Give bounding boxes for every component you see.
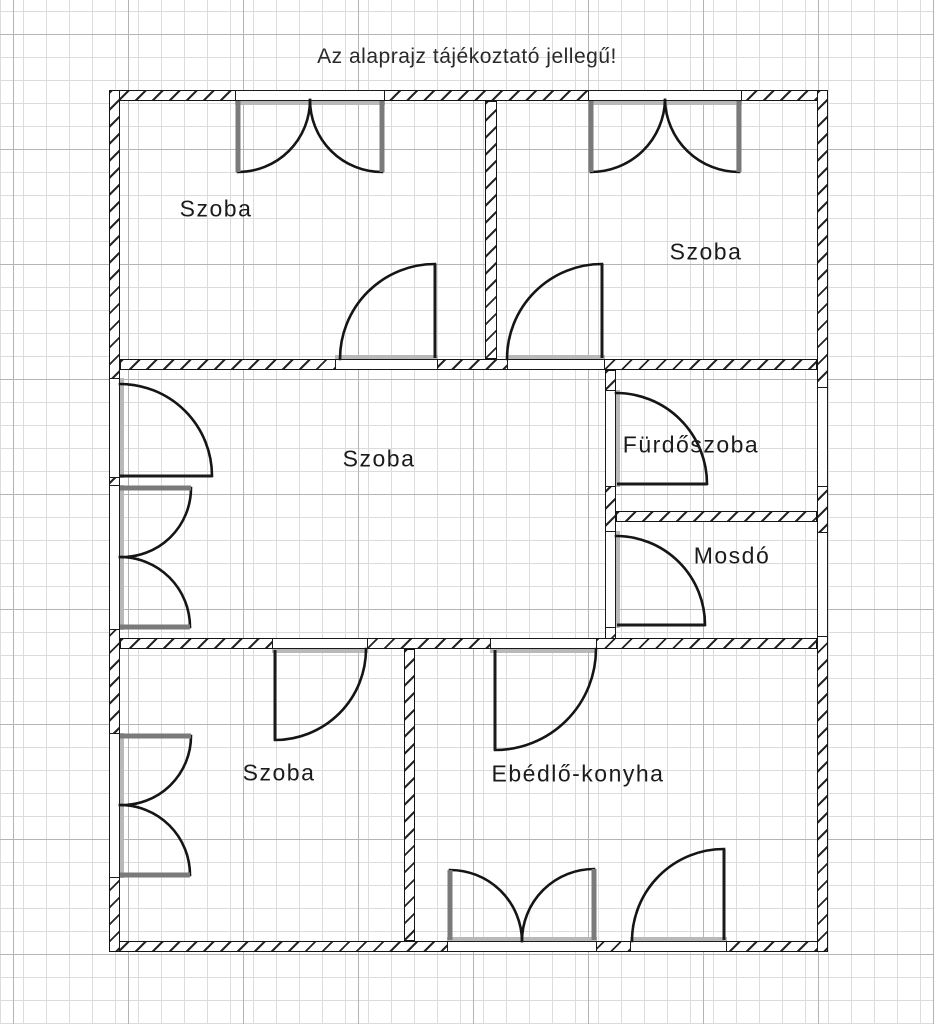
room-label-szoba-top-right: Szoba xyxy=(670,239,743,266)
door-opening-room-bottom-left xyxy=(272,638,368,649)
window-arc-middle-left-a xyxy=(120,488,191,557)
wall-middle-band-bottom xyxy=(120,638,817,649)
threshold-bathroom xyxy=(616,390,620,487)
window-arc-kitchen-a xyxy=(450,870,522,941)
threshold-washroom xyxy=(616,531,620,628)
threshold-main-entrance xyxy=(120,378,124,478)
window-arc-middle-left-b xyxy=(120,557,190,627)
window-opening-room-bottom-left xyxy=(109,733,120,878)
window-arc-top-right-b xyxy=(665,100,739,172)
window-arc-kitchen-b xyxy=(522,869,594,941)
door-arc-room-bottom-left xyxy=(275,649,366,740)
room-label-mosdo: Mosdó xyxy=(694,543,771,570)
window-arc-top-left-b xyxy=(310,100,382,172)
floor-plan: Az alaprajz tájékoztató jellegű! xyxy=(0,0,934,1024)
door-opening-washroom xyxy=(605,531,616,628)
wall-bathroom-washroom-divider xyxy=(616,511,817,522)
threshold-room-bottom-left xyxy=(272,649,368,653)
sill-window-middle-left xyxy=(120,485,124,630)
wall-middle-band-top xyxy=(120,359,817,370)
wall-between-top-rooms xyxy=(485,101,497,359)
threshold-terrace xyxy=(630,937,727,941)
door-arc-main-entrance xyxy=(120,384,212,476)
threshold-kitchen xyxy=(490,649,597,653)
door-opening-main-entrance xyxy=(109,378,120,478)
sill-window-top-right xyxy=(588,101,742,105)
window-arc-bottom-left-a xyxy=(120,736,191,805)
door-opening-room-top-right xyxy=(507,359,605,370)
window-opening-washroom-right xyxy=(817,532,828,637)
door-arc-washroom xyxy=(616,536,705,625)
window-arc-top-right-a xyxy=(591,100,665,172)
room-label-szoba-bottom-left: Szoba xyxy=(243,760,316,787)
door-arc-room-top-right xyxy=(507,264,602,359)
window-arc-top-left-a xyxy=(238,100,310,172)
door-arc-terrace xyxy=(632,849,724,941)
window-opening-room-top-right xyxy=(588,90,742,101)
plan-disclaimer-title: Az alaprajz tájékoztató jellegű! xyxy=(317,45,617,69)
threshold-room-top-left xyxy=(335,355,438,359)
window-opening-room-top-left xyxy=(235,90,385,101)
room-label-ebedlo-konyha: Ebédlő-konyha xyxy=(492,761,665,788)
sill-window-kitchen xyxy=(447,937,597,941)
door-opening-terrace xyxy=(630,941,727,952)
room-label-szoba-top-left: Szoba xyxy=(180,196,253,223)
door-arc-kitchen xyxy=(495,649,596,750)
door-opening-kitchen xyxy=(490,638,597,649)
sill-window-top-left xyxy=(235,101,385,105)
window-opening-bathroom-right xyxy=(817,387,828,487)
door-opening-bathroom xyxy=(605,390,616,487)
outer-wall-right xyxy=(817,90,828,952)
wall-between-bottom-rooms xyxy=(404,649,415,941)
door-opening-room-top-left xyxy=(335,359,438,370)
door-arc-room-top-left xyxy=(340,264,435,359)
window-arc-bottom-left-b xyxy=(120,805,190,875)
room-label-szoba-middle: Szoba xyxy=(343,446,416,473)
threshold-room-top-right xyxy=(507,355,605,359)
room-label-furdoszoba: Fürdőszoba xyxy=(623,432,759,459)
window-opening-room-middle xyxy=(109,485,120,630)
window-opening-kitchen xyxy=(447,941,597,952)
sill-window-bottom-left xyxy=(120,733,124,878)
